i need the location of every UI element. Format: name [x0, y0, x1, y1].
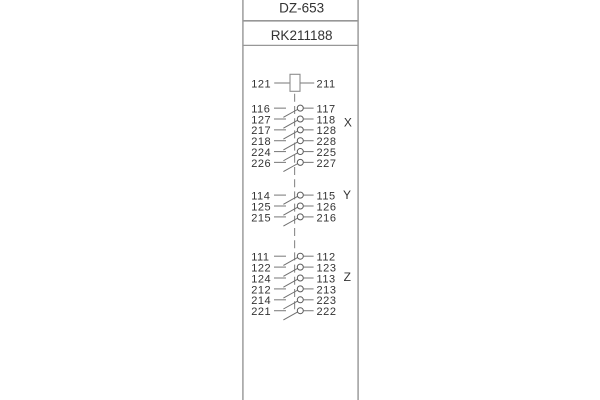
svg-text:121: 121 [251, 79, 271, 91]
svg-text:227: 227 [317, 158, 337, 170]
svg-text:211: 211 [317, 79, 336, 91]
svg-text:216: 216 [317, 212, 337, 224]
svg-text:DZ-653: DZ-653 [279, 0, 324, 15]
svg-text:Y: Y [343, 188, 351, 202]
svg-text:Z: Z [344, 270, 351, 284]
svg-text:221: 221 [251, 306, 271, 318]
svg-text:RK211188: RK211188 [271, 28, 333, 43]
svg-text:X: X [344, 116, 352, 130]
svg-text:215: 215 [251, 212, 271, 224]
svg-text:222: 222 [317, 306, 337, 318]
svg-text:226: 226 [251, 158, 271, 170]
